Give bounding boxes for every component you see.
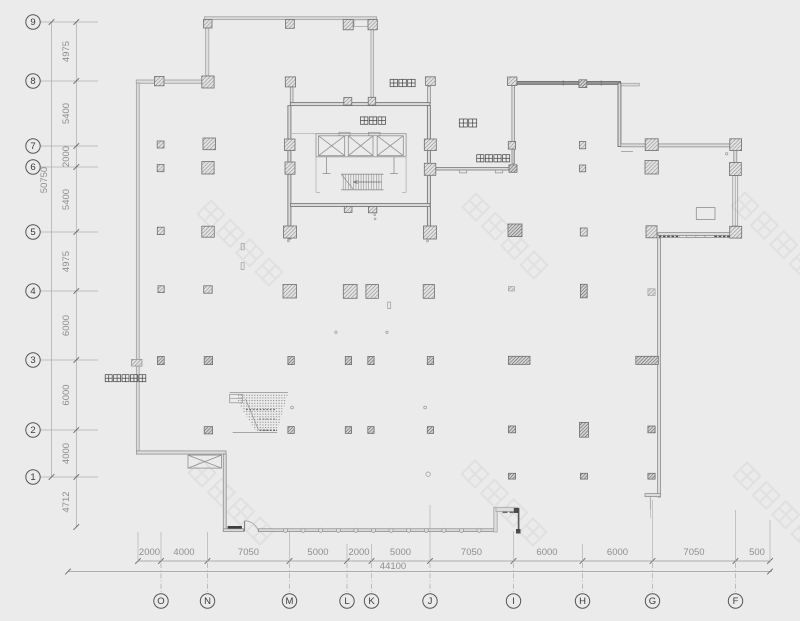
svg-text:4: 4 bbox=[30, 286, 35, 297]
svg-text:J: J bbox=[428, 596, 433, 607]
svg-text:500: 500 bbox=[749, 547, 765, 558]
svg-text:7050: 7050 bbox=[461, 547, 482, 558]
svg-text:4000: 4000 bbox=[173, 547, 194, 558]
svg-text:2000: 2000 bbox=[139, 547, 160, 558]
svg-text:I: I bbox=[512, 596, 515, 607]
svg-text:6000: 6000 bbox=[61, 315, 72, 336]
svg-text:7: 7 bbox=[30, 141, 35, 152]
svg-text:6: 6 bbox=[30, 162, 35, 173]
svg-text:4975: 4975 bbox=[61, 251, 72, 272]
svg-text:7050: 7050 bbox=[238, 547, 259, 558]
svg-text:9: 9 bbox=[30, 17, 35, 28]
svg-text:5000: 5000 bbox=[390, 547, 411, 558]
svg-text:6000: 6000 bbox=[607, 547, 628, 558]
svg-text:H: H bbox=[579, 596, 586, 607]
svg-text:5400: 5400 bbox=[61, 103, 72, 124]
svg-text:6000: 6000 bbox=[61, 384, 72, 405]
svg-text:4000: 4000 bbox=[61, 443, 72, 464]
svg-text:8: 8 bbox=[30, 76, 35, 87]
svg-text:G: G bbox=[649, 596, 656, 607]
svg-text:O: O bbox=[157, 596, 164, 607]
svg-text:4975: 4975 bbox=[61, 41, 72, 62]
svg-text:2: 2 bbox=[30, 425, 35, 436]
svg-text:N: N bbox=[204, 596, 211, 607]
svg-text:5: 5 bbox=[30, 227, 35, 238]
svg-text:3: 3 bbox=[30, 355, 35, 366]
svg-text:7050: 7050 bbox=[683, 547, 704, 558]
svg-text:50750: 50750 bbox=[39, 167, 50, 193]
svg-text:5000: 5000 bbox=[307, 547, 328, 558]
svg-text:L: L bbox=[344, 596, 349, 607]
svg-text:2000: 2000 bbox=[61, 146, 72, 167]
svg-text:5400: 5400 bbox=[61, 189, 72, 210]
svg-text:4712: 4712 bbox=[61, 491, 72, 512]
svg-text:M: M bbox=[286, 596, 294, 607]
svg-text:1: 1 bbox=[30, 472, 35, 483]
svg-text:K: K bbox=[368, 596, 375, 607]
svg-text:6000: 6000 bbox=[536, 547, 557, 558]
svg-text:2000: 2000 bbox=[348, 547, 369, 558]
svg-text:44100: 44100 bbox=[380, 561, 406, 572]
svg-text:F: F bbox=[733, 596, 739, 607]
